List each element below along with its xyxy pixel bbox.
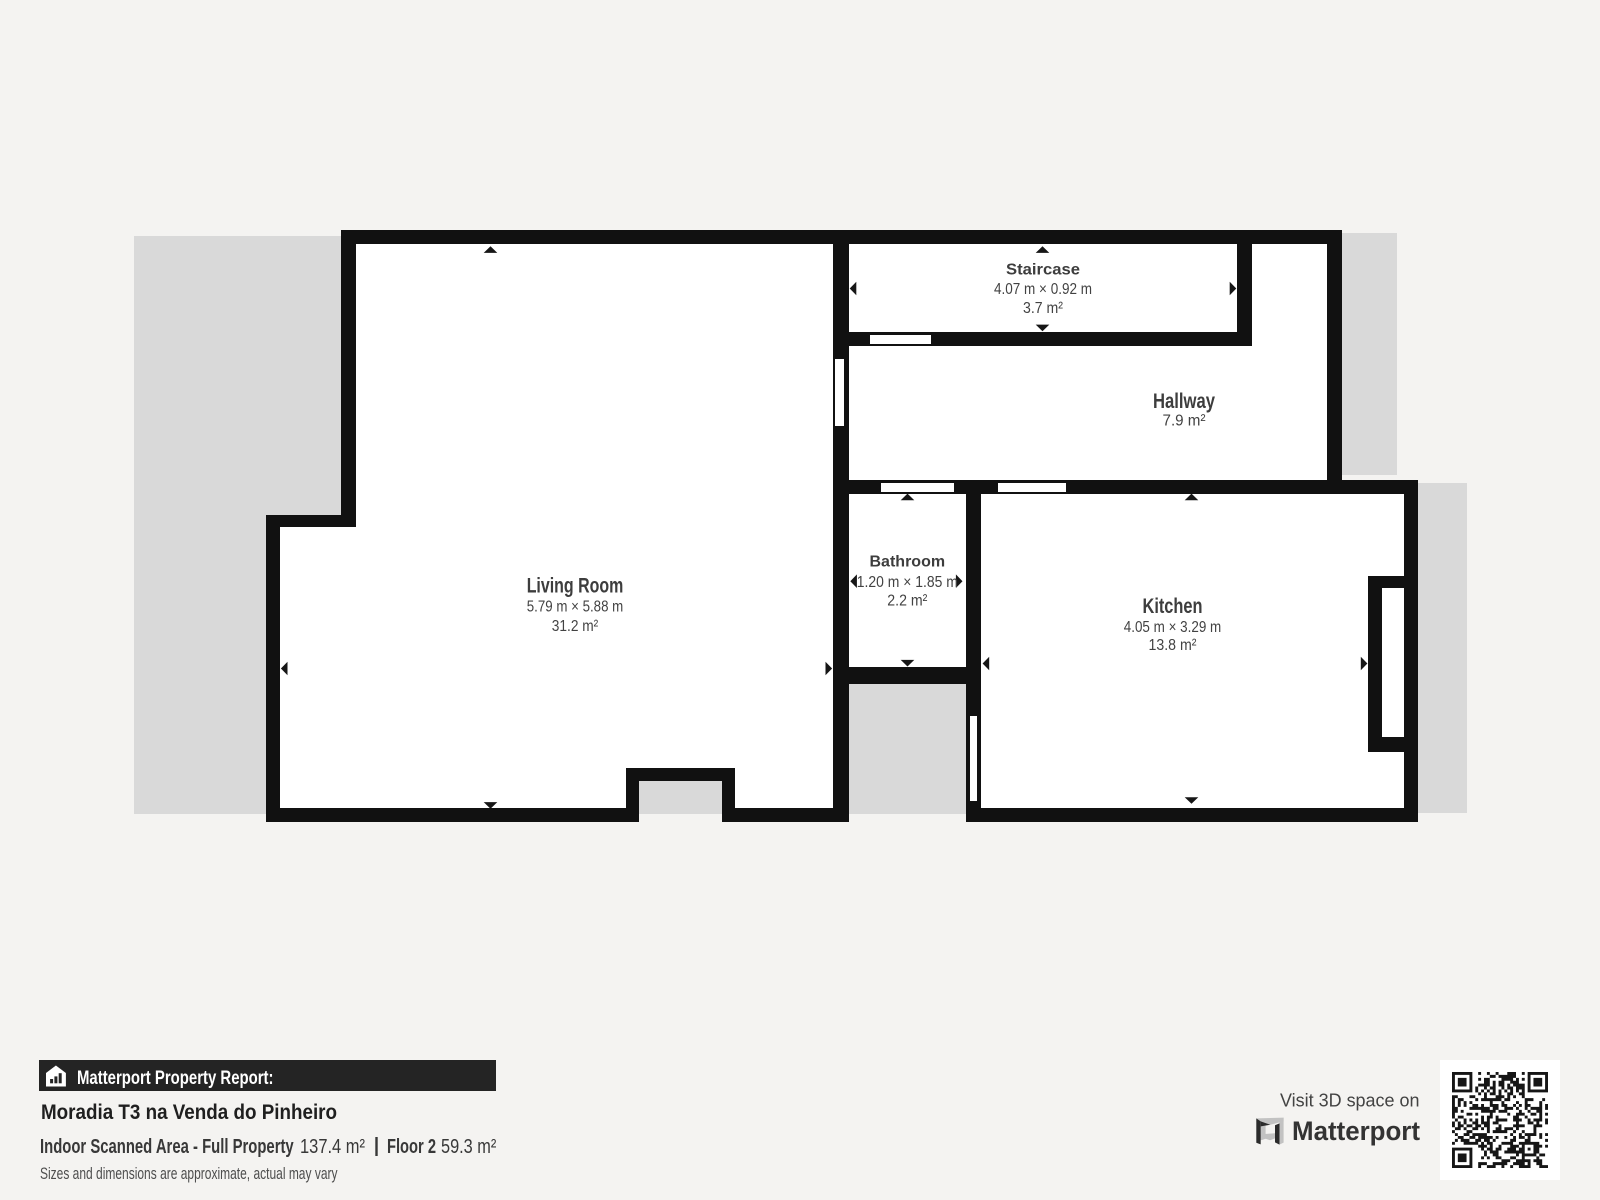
svg-text:59.3 m²: 59.3 m² <box>441 1136 497 1158</box>
svg-text:4.07 m × 0.92 m: 4.07 m × 0.92 m <box>994 281 1092 298</box>
svg-text:Bathroom: Bathroom <box>870 554 946 571</box>
svg-text:Kitchen: Kitchen <box>1143 595 1203 618</box>
svg-text:2.2 m²: 2.2 m² <box>887 592 928 609</box>
svg-text:3.7 m²: 3.7 m² <box>1023 300 1064 317</box>
svg-text:13.8 m²: 13.8 m² <box>1149 637 1198 654</box>
svg-text:Staircase: Staircase <box>1006 261 1080 278</box>
svg-text:Sizes and dimensions are appro: Sizes and dimensions are approximate, ac… <box>40 1164 338 1183</box>
svg-text:Hallway: Hallway <box>1153 390 1215 413</box>
svg-text:Visit 3D space on: Visit 3D space on <box>1280 1090 1420 1111</box>
svg-text:Floor 2: Floor 2 <box>387 1136 436 1158</box>
svg-text:31.2 m²: 31.2 m² <box>552 618 599 635</box>
svg-text:Living Room: Living Room <box>527 575 624 598</box>
svg-text:Moradia T3 na Venda do Pinheir: Moradia T3 na Venda do Pinheiro <box>41 1101 337 1124</box>
svg-text:Indoor Scanned Area - Full Pro: Indoor Scanned Area - Full Property <box>40 1136 294 1158</box>
svg-text:1.20 m × 1.85 m: 1.20 m × 1.85 m <box>857 574 958 591</box>
svg-text:5.79 m × 5.88 m: 5.79 m × 5.88 m <box>527 599 624 616</box>
svg-text:4.05 m × 3.29 m: 4.05 m × 3.29 m <box>1124 619 1222 636</box>
svg-text:Matterport: Matterport <box>1292 1116 1420 1146</box>
svg-text:137.4 m²: 137.4 m² <box>300 1136 365 1158</box>
svg-text:Matterport Property Report:: Matterport Property Report: <box>77 1067 274 1089</box>
svg-text:7.9 m²: 7.9 m² <box>1163 413 1207 430</box>
